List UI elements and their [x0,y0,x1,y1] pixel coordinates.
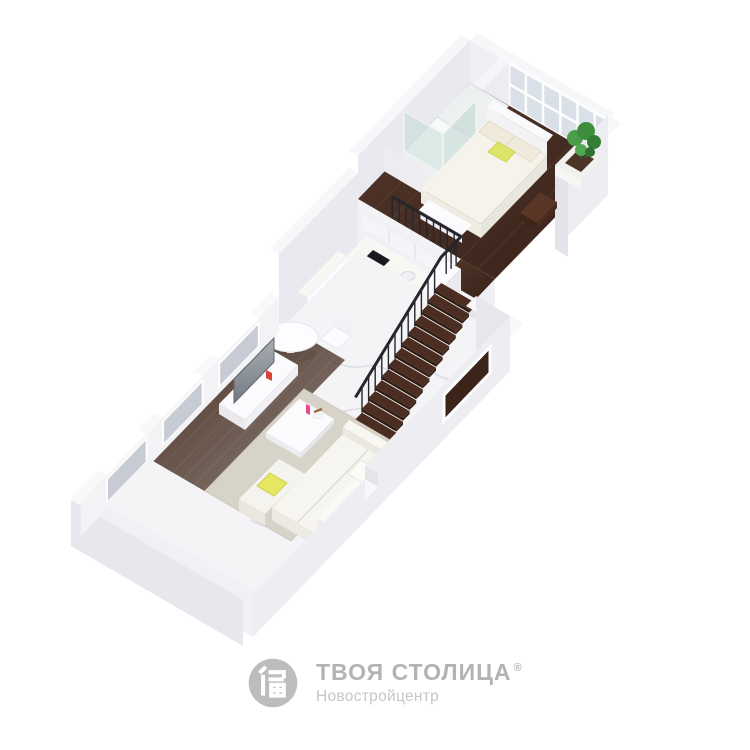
brand-title-row: ТВОЯ СТОЛИЦА® [316,660,523,685]
brand-text: ТВОЯ СТОЛИЦА® Новостройцентр [316,660,523,706]
plant-foliage [575,144,587,156]
marble-vein [370,520,400,528]
table-dish [313,414,323,419]
logo-glyph [260,667,284,696]
right-block-end [555,169,568,257]
building-logo-icon [246,656,300,710]
brand-logo: ТВОЯ СТОЛИЦА® Новостройцентр [246,656,523,710]
plant-foliage [585,147,595,157]
plant-foliage [587,135,601,149]
floor-plan-render: ТВОЯ СТОЛИЦА® Новостройцентр [0,0,750,750]
brand-subtitle: Новостройцентр [316,688,523,706]
brand-title: ТВОЯ СТОЛИЦА [316,659,512,685]
registered-mark: ® [514,662,523,674]
apartment-isometric-svg [0,0,750,750]
